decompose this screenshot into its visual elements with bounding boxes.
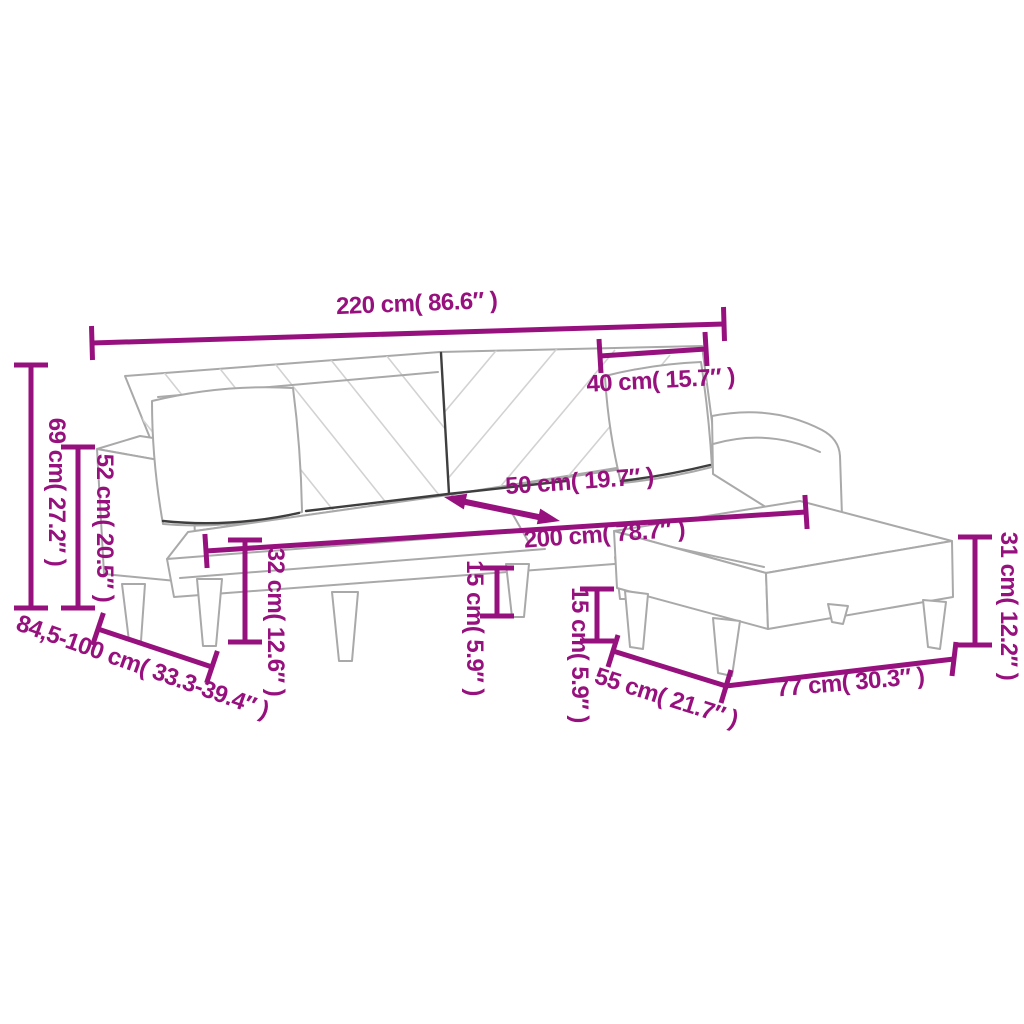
dim-footstool-width-label: 77 cm( 30.3″ ) bbox=[775, 663, 925, 703]
dim-sofa-back-height-label: 69 cm( 27.2″ ) bbox=[43, 418, 70, 567]
footstool-leg bbox=[625, 591, 648, 649]
dim-sofa-leg-height-label: 15 cm( 5.9″ ) bbox=[461, 560, 488, 696]
dim-sofa-leg-height: 15 cm( 5.9″ ) bbox=[461, 560, 514, 696]
sofa-leg bbox=[506, 564, 529, 617]
dim-footstool-leg-height: 15 cm( 5.9″ ) bbox=[566, 587, 614, 723]
sofa-leg bbox=[197, 579, 222, 646]
footstool-leg bbox=[923, 600, 946, 649]
sofa-leg bbox=[122, 584, 145, 641]
sofa-leg bbox=[332, 592, 358, 661]
footstool-leg bbox=[828, 604, 848, 624]
dim-armrest-height-label: 52 cm( 20.5″ ) bbox=[91, 454, 118, 603]
dim-seat-height-label: 32 cm( 12.6″ ) bbox=[262, 548, 289, 697]
diagram-svg: 220 cm( 86.6″ ) 40 cm( 15.7″ ) 69 cm( 27… bbox=[0, 0, 1024, 1024]
dim-sofa-back-height: 69 cm( 27.2″ ) bbox=[14, 365, 70, 608]
dimension-diagram: 220 cm( 86.6″ ) 40 cm( 15.7″ ) 69 cm( 27… bbox=[0, 0, 1024, 1024]
dim-footstool-height: 31 cm( 12.2″ ) bbox=[958, 532, 1022, 681]
footstool-leg bbox=[713, 618, 740, 676]
dim-footstool-leg-height-label: 15 cm( 5.9″ ) bbox=[566, 587, 593, 723]
dim-footstool-height-label: 31 cm( 12.2″ ) bbox=[995, 532, 1022, 681]
left-pillow bbox=[152, 387, 302, 525]
dim-footstool-width: 77 cm( 30.3″ ) bbox=[726, 642, 956, 702]
dim-sofa-total-width-label: 220 cm( 86.6″ ) bbox=[336, 287, 498, 320]
